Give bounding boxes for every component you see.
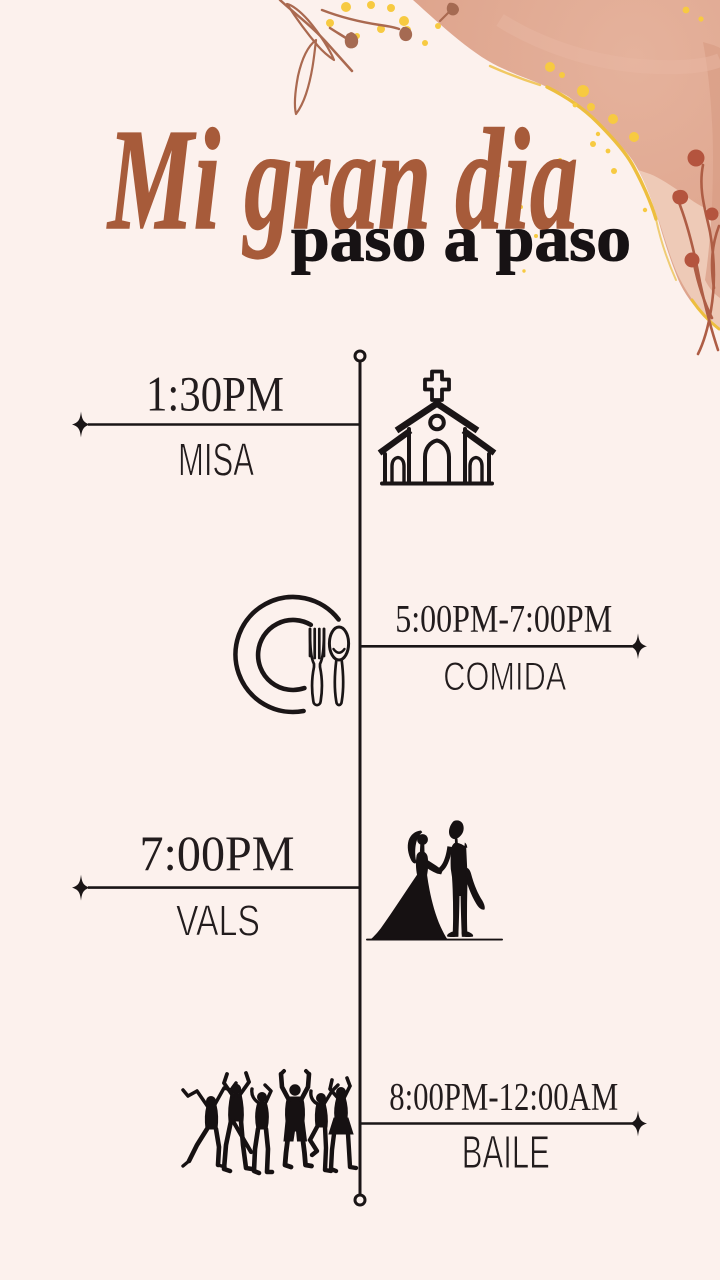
- svg-text:8:00PM-12:00AM: 8:00PM-12:00AM: [389, 1075, 618, 1119]
- svg-text:BAILE: BAILE: [462, 1126, 550, 1178]
- svg-text:5:00PM-7:00PM: 5:00PM-7:00PM: [395, 597, 612, 641]
- svg-text:7:00PM: 7:00PM: [140, 825, 295, 881]
- svg-text:COMIDA: COMIDA: [443, 655, 567, 699]
- svg-text:VALS: VALS: [176, 896, 260, 945]
- svg-text:1:30PM: 1:30PM: [146, 366, 284, 422]
- svg-text:paso a paso: paso a paso: [291, 203, 631, 276]
- svg-text:MISA: MISA: [178, 434, 254, 486]
